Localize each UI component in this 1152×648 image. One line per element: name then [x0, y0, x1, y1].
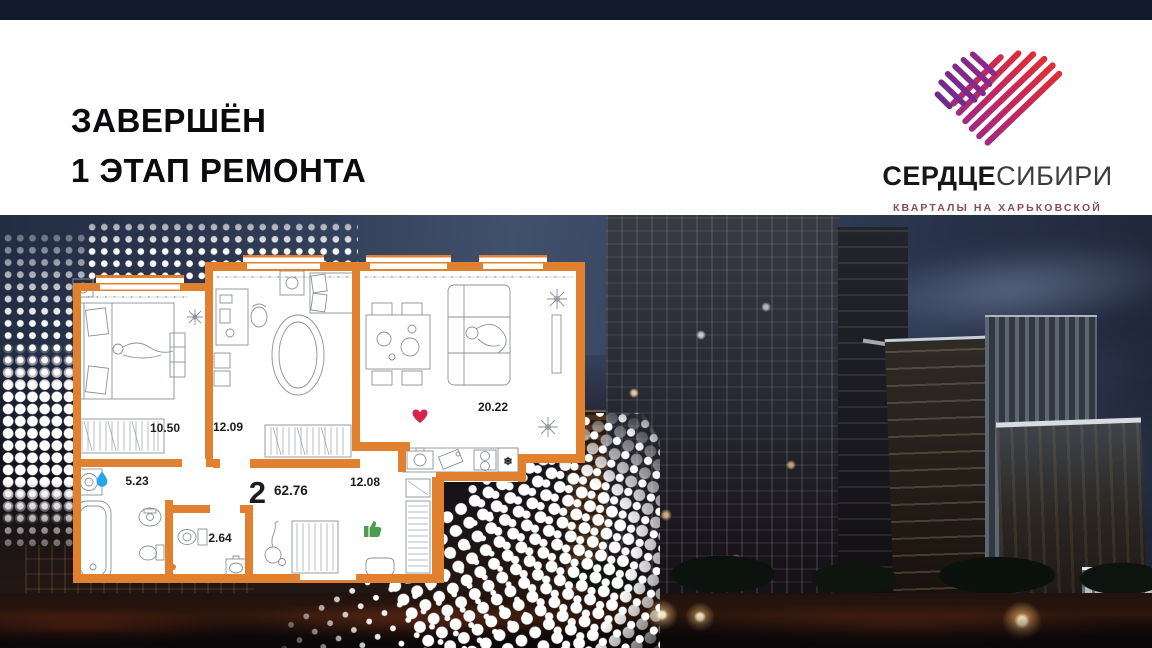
- page-title: ЗАВЕРШЁН 1 ЭТАП РЕМОНТА: [71, 96, 591, 196]
- logo-brand-light: СИБИРИ: [996, 161, 1112, 191]
- title-line-1: ЗАВЕРШЁН: [71, 96, 591, 146]
- plant-icon: [547, 289, 567, 309]
- room-label-wc: 2.64: [208, 531, 232, 545]
- room-label-room: 12.09: [213, 420, 243, 434]
- snowflake-icon: ❄: [503, 456, 512, 468]
- room-label-bathroom: 5.23: [125, 474, 149, 488]
- logo-brand-bold: СЕРДЦЕ: [882, 161, 996, 191]
- floor-plan: ❄: [60, 255, 592, 595]
- logo-wordmark: СЕРДЦЕСИБИРИ: [860, 161, 1135, 192]
- plant-icon: [187, 309, 203, 325]
- slide: ЗАВЕРШЁН 1 ЭТАП РЕМОНТА: [0, 0, 1152, 648]
- total-area: 62.76: [274, 483, 308, 498]
- room-label-bedroom: 10.50: [150, 421, 180, 435]
- plant-icon: [538, 417, 558, 437]
- top-bar: [0, 0, 1152, 20]
- kitchen-counter: ❄: [403, 448, 518, 472]
- room-label-living: 20.22: [478, 400, 508, 414]
- heart-logo-icon: [926, 46, 1066, 150]
- header-band: ЗАВЕРШЁН 1 ЭТАП РЕМОНТА: [0, 20, 1152, 215]
- bottom-vignette: [0, 615, 1152, 648]
- title-line-2: 1 ЭТАП РЕМОНТА: [71, 146, 591, 196]
- logo-subtitle: КВАРТАЛЫ НА ХАРЬКОВСКОЙ: [860, 202, 1135, 214]
- apartment-number: 2: [249, 475, 266, 510]
- room-label-hallway: 12.08: [350, 475, 380, 489]
